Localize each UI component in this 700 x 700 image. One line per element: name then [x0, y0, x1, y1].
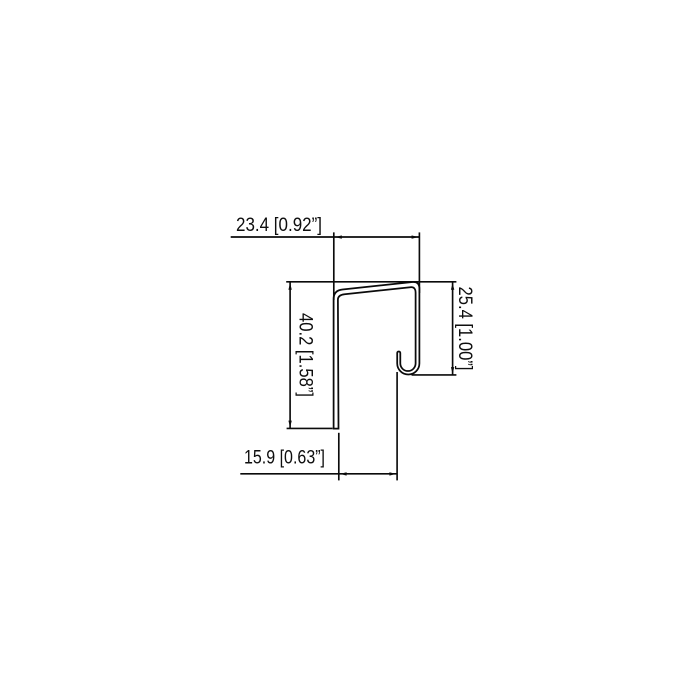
svg-text:25.4 [1.00”]: 25.4 [1.00”] [454, 287, 475, 371]
svg-text:23.4 [0.92”]: 23.4 [0.92”] [236, 215, 322, 236]
svg-text:40.2 [1.58”]: 40.2 [1.58”] [294, 313, 315, 397]
svg-text:15.9 [0.63”]: 15.9 [0.63”] [244, 448, 325, 469]
